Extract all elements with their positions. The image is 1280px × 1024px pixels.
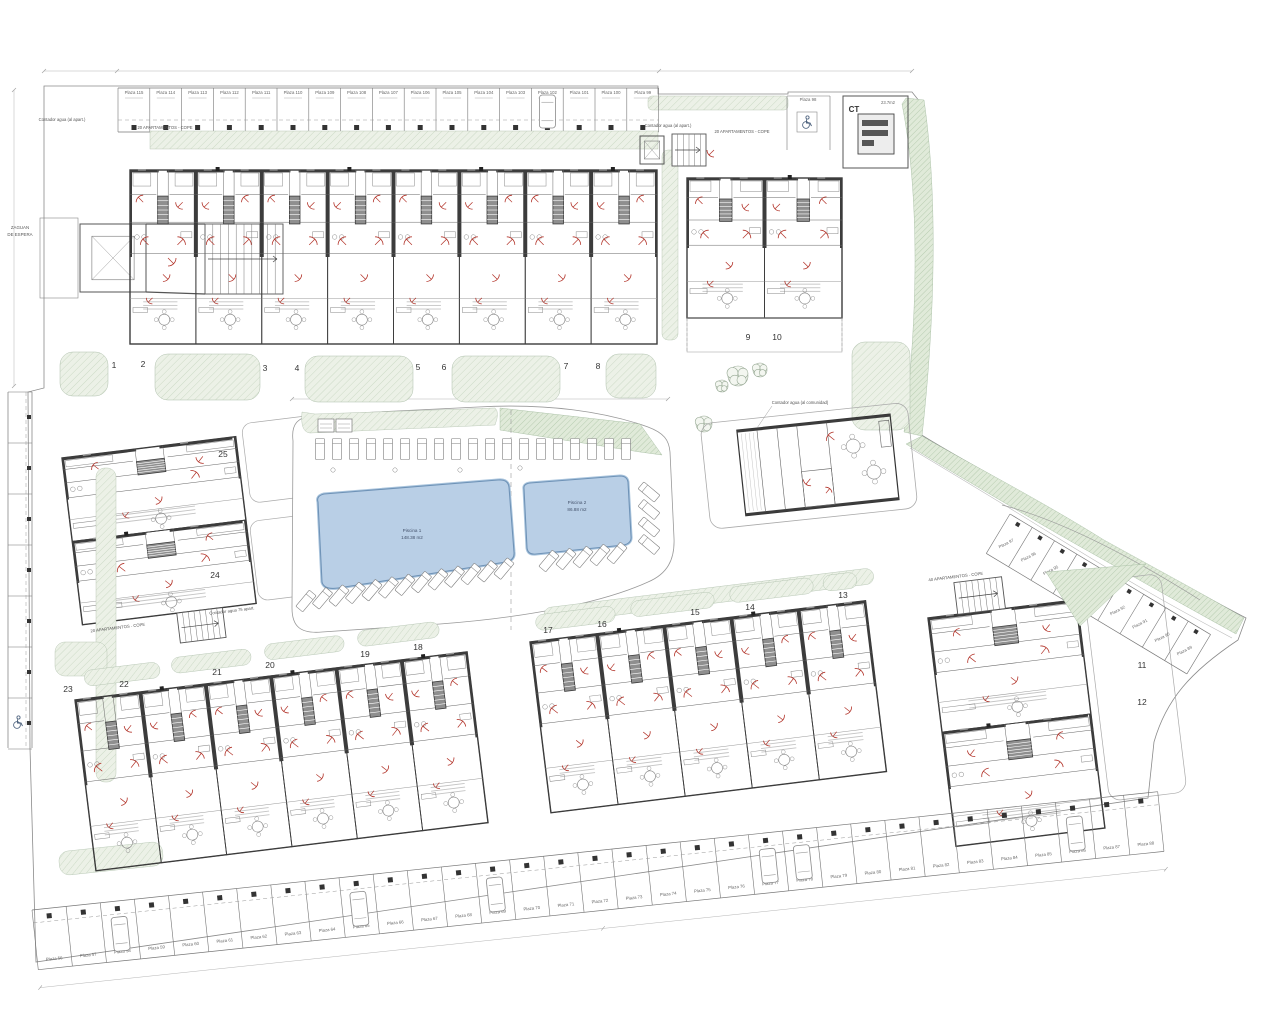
green-strip xyxy=(171,648,252,674)
wc xyxy=(398,235,403,240)
shower xyxy=(510,232,521,238)
bathroom xyxy=(802,469,836,508)
unit-floorplan xyxy=(664,616,752,796)
garden-plot xyxy=(606,354,656,398)
shower xyxy=(133,753,145,760)
parking-stall-label: Plaza 108 xyxy=(347,90,367,95)
chair xyxy=(811,296,815,300)
sink xyxy=(77,486,82,491)
stall-marker xyxy=(195,125,200,130)
stall-marker xyxy=(81,909,86,914)
chair xyxy=(452,808,456,812)
entry-marker xyxy=(617,628,621,632)
parking-stall-label: Plaza 66 xyxy=(387,919,405,926)
stall-marker xyxy=(354,125,359,130)
window xyxy=(270,169,278,171)
sun-lounger xyxy=(520,439,529,460)
bed xyxy=(405,660,424,675)
parking-stall-label: Plaza 75 xyxy=(694,887,712,894)
sofa xyxy=(331,307,345,312)
stall-marker xyxy=(27,619,31,623)
wc xyxy=(135,235,140,240)
bed xyxy=(600,634,620,649)
parking-stall-label: Plaza 113 xyxy=(188,90,207,95)
chair xyxy=(434,318,438,322)
bed xyxy=(570,173,588,186)
stall-marker xyxy=(899,823,904,828)
chair xyxy=(133,839,137,843)
table xyxy=(252,820,264,832)
green-strip xyxy=(264,635,345,661)
table xyxy=(317,812,329,824)
chair xyxy=(368,318,372,322)
stall-marker xyxy=(217,895,222,900)
entrance-label: ZAGUAN xyxy=(11,225,29,230)
unit-number-label: 20 xyxy=(265,660,275,670)
bed xyxy=(133,173,151,186)
parking-stall-label: Plaza 112 xyxy=(220,90,239,95)
sofa xyxy=(528,307,542,312)
shower xyxy=(590,695,602,702)
unit-number-label: 13 xyxy=(838,590,848,600)
window xyxy=(696,177,704,179)
shower xyxy=(858,662,870,669)
stall-marker xyxy=(1126,589,1131,594)
sun-lounger xyxy=(469,439,478,460)
stall-marker xyxy=(322,125,327,130)
parking-stall-label: Plaza 67 xyxy=(421,916,439,923)
chair xyxy=(255,816,259,820)
shower xyxy=(724,678,736,685)
chair xyxy=(322,824,326,828)
table xyxy=(291,314,302,325)
stall-marker xyxy=(1036,809,1041,814)
parking-stall-label: Plaza 115 xyxy=(125,90,144,95)
parking-stall-label: Plaza 99 xyxy=(634,90,651,95)
sun-lounger xyxy=(316,439,325,460)
parking-stall-label: Plaza 59 xyxy=(148,944,166,951)
chair xyxy=(444,801,448,805)
car xyxy=(350,891,369,926)
chair xyxy=(394,807,398,811)
unit-number-label: 8 xyxy=(596,361,601,371)
chair xyxy=(170,608,174,612)
unit-number-label: 3 xyxy=(263,363,268,373)
chair xyxy=(850,757,854,761)
chair xyxy=(294,310,298,314)
chair xyxy=(248,825,252,829)
window xyxy=(533,169,541,171)
unit-number-label: 5 xyxy=(416,362,421,372)
sofa xyxy=(462,307,476,312)
bed xyxy=(144,692,163,707)
sofa xyxy=(818,742,833,749)
chair xyxy=(848,741,852,745)
chair xyxy=(320,808,324,812)
unit-number-label: 6 xyxy=(442,362,447,372)
unit-floorplan xyxy=(597,623,685,805)
green-strip xyxy=(648,96,788,110)
sofa xyxy=(225,817,240,824)
chair xyxy=(1023,703,1027,707)
shower xyxy=(313,232,324,238)
entry-marker xyxy=(124,532,128,536)
unit-floorplan xyxy=(401,649,488,831)
sofa xyxy=(265,307,279,312)
entry-marker xyxy=(611,167,615,171)
window xyxy=(504,169,512,171)
sun-lounger xyxy=(350,439,359,460)
chair xyxy=(387,816,391,820)
chair xyxy=(451,792,455,796)
stall-marker xyxy=(132,125,137,130)
chair xyxy=(649,782,653,786)
stall-marker xyxy=(285,888,290,893)
window xyxy=(241,169,249,171)
window xyxy=(336,169,344,171)
stall-marker xyxy=(291,125,296,130)
wc xyxy=(70,487,75,492)
wc xyxy=(530,235,535,240)
chair xyxy=(170,318,174,322)
bed xyxy=(528,173,546,186)
wc xyxy=(952,773,957,778)
entry-marker xyxy=(347,167,351,171)
unit-number-label: 11 xyxy=(1138,660,1147,670)
bed xyxy=(185,687,204,702)
entrance-label: DE ESPERA xyxy=(7,232,32,237)
chair xyxy=(484,318,488,322)
sofa xyxy=(550,775,565,782)
bed xyxy=(209,684,228,699)
sofa xyxy=(95,833,110,840)
parking-stall-label: Plaza 105 xyxy=(442,90,462,95)
chair xyxy=(228,310,232,314)
sofa xyxy=(617,766,632,773)
window xyxy=(372,169,380,171)
chair xyxy=(182,833,186,837)
chair xyxy=(860,442,866,448)
chair xyxy=(228,326,232,330)
wc xyxy=(332,235,337,240)
window xyxy=(774,177,782,179)
parking-stall-label: Plaza 60 xyxy=(182,941,200,948)
pool-2 xyxy=(524,476,631,554)
pool-label: Piscina 2 xyxy=(568,500,587,505)
chair xyxy=(774,759,778,763)
stall-marker xyxy=(1015,522,1020,527)
parking-stall-label: Plaza 107 xyxy=(379,90,399,95)
bed xyxy=(199,173,217,186)
chair xyxy=(385,800,389,804)
lobby xyxy=(40,218,78,298)
stall-marker xyxy=(450,125,455,130)
unit-floorplan xyxy=(731,606,819,788)
entry-marker xyxy=(751,611,755,615)
unit-number-label: 12 xyxy=(1137,697,1147,707)
sofa xyxy=(684,758,699,765)
chair xyxy=(725,304,729,308)
table xyxy=(382,804,394,816)
parking-stall-label: Plaza 82 xyxy=(933,862,951,869)
pool-area-label: 86.88 m2 xyxy=(567,507,587,512)
stall-marker xyxy=(46,913,51,918)
table xyxy=(620,314,631,325)
bed xyxy=(331,173,349,186)
bed xyxy=(802,609,822,624)
car xyxy=(539,95,555,128)
stall-marker xyxy=(1171,615,1176,620)
parking-stall-label: Plaza 81 xyxy=(898,865,916,872)
bed xyxy=(340,668,359,683)
table xyxy=(799,293,810,304)
car xyxy=(759,848,778,883)
circle xyxy=(806,116,809,119)
chair xyxy=(418,318,422,322)
stall-marker xyxy=(513,125,518,130)
garden-plot xyxy=(452,356,560,402)
chair xyxy=(647,766,651,770)
bed xyxy=(594,173,612,186)
stall-marker xyxy=(481,125,486,130)
chair xyxy=(723,765,727,769)
parking-stall-label: Plaza 100 xyxy=(601,90,621,95)
annotation-label: 20 APARTAMENTOS - COPE xyxy=(714,129,769,134)
parking-stall-label: Plaza 70 xyxy=(523,905,541,912)
bed xyxy=(439,173,457,186)
stall-marker xyxy=(577,125,582,130)
stall-marker xyxy=(660,848,665,853)
chair xyxy=(849,434,855,440)
chair xyxy=(294,326,298,330)
stall-marker xyxy=(1002,813,1007,818)
bed xyxy=(735,618,755,633)
unit-number-label: 21 xyxy=(212,667,222,677)
sink xyxy=(945,658,950,663)
unit-floorplan xyxy=(928,599,1091,732)
shower xyxy=(750,228,761,234)
parking-stall-label: Plaza 79 xyxy=(830,873,848,880)
site-plan-sheet: Plaza 115Plaza 114Plaza 113Plaza 112Plaz… xyxy=(0,0,1280,1024)
chair xyxy=(841,444,847,450)
block-bottom-right xyxy=(924,557,1190,846)
chair xyxy=(154,318,158,322)
bed xyxy=(668,626,688,641)
unit-floorplan xyxy=(525,169,591,344)
chair xyxy=(550,318,554,322)
stall-marker xyxy=(27,670,31,674)
unit-number-label: 22 xyxy=(119,679,129,689)
unit-floorplan xyxy=(336,659,422,839)
table xyxy=(554,314,565,325)
table xyxy=(356,314,367,325)
window xyxy=(570,169,578,171)
stall-marker xyxy=(27,466,31,470)
chair xyxy=(160,524,164,528)
car xyxy=(793,844,812,879)
parking-stall-label: Plaza 76 xyxy=(728,883,746,890)
window xyxy=(138,169,146,171)
green-blob xyxy=(58,841,164,876)
table xyxy=(159,314,170,325)
table xyxy=(225,314,236,325)
chair xyxy=(1037,818,1041,822)
parking-stall-label: Plaza 64 xyxy=(318,926,336,933)
parking-stall-label: Plaza 73 xyxy=(626,894,644,901)
chair xyxy=(795,296,799,300)
pool-kiosk xyxy=(318,419,334,432)
chair xyxy=(862,470,868,476)
unit-number-label: 19 xyxy=(360,649,370,659)
shower xyxy=(379,232,390,238)
unit-floorplan xyxy=(271,665,358,847)
parking-stall-label: Plaza 111 xyxy=(252,90,271,95)
window xyxy=(636,169,644,171)
circle xyxy=(803,122,810,129)
stall-marker xyxy=(251,891,256,896)
stall-marker xyxy=(1082,562,1087,567)
chair xyxy=(582,790,586,794)
tree-cluster xyxy=(695,416,712,432)
shower xyxy=(181,232,192,238)
sun-lounger xyxy=(367,439,376,460)
chair xyxy=(256,832,260,836)
wc xyxy=(938,659,943,664)
wc xyxy=(596,235,601,240)
unit-number-label: 4 xyxy=(295,363,300,373)
chair xyxy=(733,296,737,300)
chair xyxy=(191,840,195,844)
stall-marker xyxy=(386,125,391,130)
sun-lounger xyxy=(452,439,461,460)
bed xyxy=(307,173,325,186)
sofa xyxy=(421,793,436,800)
chair xyxy=(360,310,364,314)
sun-lounger xyxy=(503,439,512,460)
block-bottom-left xyxy=(71,618,488,871)
sun-lounger xyxy=(384,439,393,460)
stall-marker xyxy=(1138,798,1143,803)
chair xyxy=(580,774,584,778)
unit-number-label: 17 xyxy=(543,625,553,635)
stall-marker xyxy=(183,899,188,904)
car xyxy=(111,916,130,951)
stall-marker xyxy=(797,834,802,839)
stall-marker xyxy=(490,866,495,871)
annotation-label: Contador agua (al apart.) xyxy=(39,117,86,122)
stall-marker xyxy=(933,820,938,825)
table xyxy=(488,314,499,325)
wc xyxy=(692,230,697,235)
unit-floorplan xyxy=(765,175,843,318)
shower xyxy=(1081,755,1093,762)
parking-stall-label: Plaza 72 xyxy=(591,898,609,905)
sun-lounger xyxy=(486,439,495,460)
site-plan-drawing: Plaza 115Plaza 114Plaza 113Plaza 112Plaz… xyxy=(0,0,1280,1024)
chair xyxy=(492,310,496,314)
wc xyxy=(769,230,774,235)
unit-floorplan xyxy=(206,675,292,855)
tree-cluster xyxy=(752,363,767,377)
garden-plot xyxy=(305,356,413,402)
wc xyxy=(414,722,419,727)
parking-stall-label: Plaza 80 xyxy=(864,869,882,876)
wc xyxy=(610,696,615,701)
chair xyxy=(841,750,845,754)
entrance-core: ZAGUANDE ESPERA xyxy=(7,218,283,298)
stall-marker xyxy=(422,874,427,879)
sun-lounger xyxy=(571,439,580,460)
ct-area-label: 23.7m2 xyxy=(881,100,896,105)
chair xyxy=(302,318,306,322)
sofa xyxy=(133,307,147,312)
chair xyxy=(313,817,317,821)
shower xyxy=(791,670,803,677)
parking-stall-label: Plaza 106 xyxy=(411,90,431,95)
bed xyxy=(120,695,139,710)
chair xyxy=(781,750,785,754)
chair xyxy=(1030,827,1034,831)
transformer-area: Plaza 98CT23.7m2 xyxy=(787,96,908,168)
chair xyxy=(857,748,861,752)
table xyxy=(866,464,881,479)
wc xyxy=(542,704,547,709)
bed xyxy=(462,173,480,186)
pool-deck: Piscina 1148.38 m2Piscina 286.88 m2 xyxy=(292,406,674,632)
parking-stall-label: Plaza 92 xyxy=(1109,604,1126,616)
chair xyxy=(589,781,593,785)
chair xyxy=(117,841,121,845)
unit-floorplan xyxy=(798,600,886,780)
table xyxy=(778,754,790,766)
window xyxy=(599,169,607,171)
shower xyxy=(394,721,406,728)
chair xyxy=(352,318,356,322)
sofa xyxy=(291,809,306,816)
green-strip xyxy=(150,131,658,149)
unit-number-label: 24 xyxy=(210,570,220,580)
stall-marker xyxy=(1149,602,1154,607)
parking-stall-label: Plaza 91 xyxy=(1131,617,1148,629)
chair xyxy=(459,799,463,803)
entry-marker xyxy=(986,723,990,727)
bed xyxy=(711,621,731,636)
chair xyxy=(1021,820,1025,824)
shower xyxy=(642,232,653,238)
bed xyxy=(576,637,596,652)
chair xyxy=(566,318,570,322)
unit-number-label: 18 xyxy=(413,642,423,652)
unit-floorplan xyxy=(328,167,394,344)
chair xyxy=(881,468,887,474)
window xyxy=(401,169,409,171)
stall-marker xyxy=(831,831,836,836)
stall-marker xyxy=(1070,805,1075,810)
pool-kiosk xyxy=(336,419,352,432)
sofa xyxy=(356,801,371,808)
top-parking-row: Plaza 115Plaza 114Plaza 113Plaza 112Plaz… xyxy=(118,88,659,149)
chair xyxy=(236,318,240,322)
pool-label: Piscina 1 xyxy=(403,528,422,533)
parking-stall-label: Plaza 101 xyxy=(570,90,590,95)
parking-stall-label: Plaza 74 xyxy=(660,890,678,897)
entry-marker xyxy=(160,686,164,690)
parking-stall-label: Plaza 110 xyxy=(284,90,303,95)
chair xyxy=(640,775,644,779)
stall-marker xyxy=(1104,802,1109,807)
unit-number-label: 7 xyxy=(564,361,569,371)
stall-marker xyxy=(558,859,563,864)
